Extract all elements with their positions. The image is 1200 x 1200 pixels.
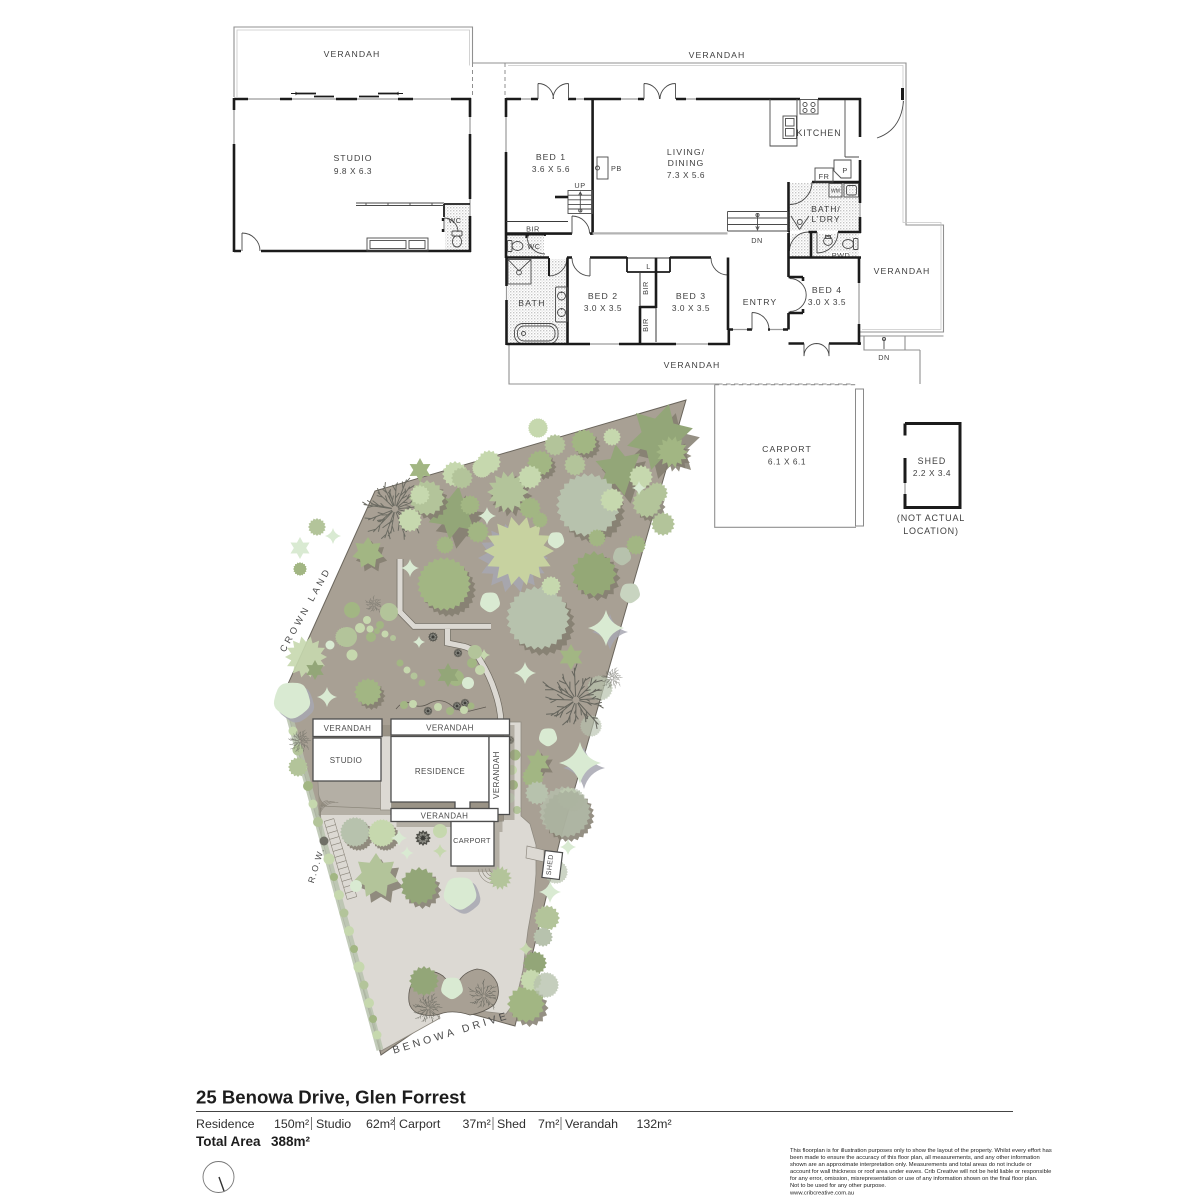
svg-text:BATH: BATH [518, 298, 545, 308]
svg-text:62m²: 62m² [366, 1117, 394, 1131]
svg-text:VERANDAH: VERANDAH [664, 360, 721, 370]
svg-text:DN: DN [751, 236, 763, 245]
svg-text:L’DRY: L’DRY [811, 214, 840, 224]
svg-text:7.3 X 5.6: 7.3 X 5.6 [667, 170, 705, 180]
svg-text:9.8 X 6.3: 9.8 X 6.3 [334, 166, 372, 176]
svg-text:6.1 X 6.1: 6.1 X 6.1 [768, 457, 806, 467]
svg-text:DN: DN [878, 353, 890, 362]
svg-text:(NOT ACTUAL: (NOT ACTUAL [897, 513, 965, 523]
svg-text:VERANDAH: VERANDAH [874, 266, 931, 276]
svg-text:Verandah: Verandah [565, 1117, 618, 1131]
svg-text:Studio: Studio [316, 1117, 351, 1131]
svg-text:VERANDAH: VERANDAH [324, 724, 372, 733]
svg-text:CARPORT: CARPORT [762, 444, 812, 454]
svg-text:VERANDAH: VERANDAH [426, 724, 474, 733]
svg-text:BED 3: BED 3 [676, 291, 706, 301]
svg-text:Not to be used for any other p: Not to be used for any other purpose. [790, 1183, 886, 1189]
svg-text:7m²: 7m² [538, 1117, 559, 1131]
svg-text:Residence: Residence [196, 1117, 255, 1131]
svg-text:RESIDENCE: RESIDENCE [415, 767, 465, 776]
svg-text:www.cribcreative.com.au: www.cribcreative.com.au [789, 1190, 854, 1196]
svg-text:for any error, omission, misre: for any error, omission, misrepresentati… [790, 1176, 1038, 1182]
svg-text:CARPORT: CARPORT [453, 836, 491, 845]
svg-text:shown are an approximate inter: shown are an approximate interpretation … [790, 1162, 1032, 1168]
svg-text:VERANDAH: VERANDAH [421, 812, 469, 821]
svg-text:DINING: DINING [668, 158, 705, 168]
svg-text:BIR: BIR [641, 318, 650, 332]
svg-text:37m²: 37m² [463, 1117, 491, 1131]
svg-text:BED 4: BED 4 [812, 285, 842, 295]
svg-text:WC: WC [448, 216, 461, 225]
svg-text:150m²: 150m² [274, 1117, 309, 1131]
svg-text:Shed: Shed [497, 1117, 526, 1131]
svg-text:3.0 X 3.5: 3.0 X 3.5 [672, 303, 710, 313]
svg-text:KITCHEN: KITCHEN [797, 128, 842, 138]
svg-text:Total Area: Total Area [196, 1134, 261, 1149]
svg-text:PB: PB [611, 164, 622, 173]
svg-text:388m²: 388m² [271, 1134, 311, 1149]
svg-text:3.0 X 3.5: 3.0 X 3.5 [584, 303, 622, 313]
svg-text:WM: WM [831, 189, 840, 195]
svg-text:STUDIO: STUDIO [333, 153, 372, 163]
svg-text:VERANDAH: VERANDAH [492, 751, 501, 799]
svg-text:WC: WC [527, 242, 540, 251]
svg-text:STUDIO: STUDIO [330, 756, 363, 765]
svg-text:This floorplan is for illustra: This floorplan is for illustration purpo… [790, 1148, 1052, 1154]
svg-text:BED 1: BED 1 [536, 152, 566, 162]
svg-text:2.2 X 3.4: 2.2 X 3.4 [913, 468, 951, 478]
svg-text:BIR: BIR [641, 281, 650, 295]
svg-text:P: P [842, 166, 847, 175]
svg-text:3.0 X 3.5: 3.0 X 3.5 [808, 297, 846, 307]
svg-text:ENTRY: ENTRY [743, 297, 778, 307]
svg-text:BED 2: BED 2 [588, 291, 618, 301]
svg-text:LIVING/: LIVING/ [667, 147, 705, 157]
svg-text:Carport: Carport [399, 1117, 441, 1131]
svg-text:L: L [646, 262, 651, 271]
svg-text:UP: UP [574, 181, 585, 190]
svg-text:132m²: 132m² [637, 1117, 672, 1131]
svg-text:VERANDAH: VERANDAH [324, 49, 381, 59]
svg-text:R.O.W.: R.O.W. [306, 846, 326, 884]
svg-text:been made to ensure the accura: been made to ensure the accuracy of this… [790, 1155, 1040, 1161]
svg-text:BIR: BIR [526, 225, 540, 234]
svg-text:25 Benowa Drive, Glen Forrest: 25 Benowa Drive, Glen Forrest [196, 1087, 466, 1108]
svg-text:3.6 X 5.6: 3.6 X 5.6 [532, 164, 570, 174]
svg-text:FR: FR [819, 172, 830, 181]
svg-text:LOCATION): LOCATION) [903, 526, 959, 536]
svg-text:SHED: SHED [918, 456, 947, 466]
svg-text:account for wall thickness or: account for wall thickness or roof area … [790, 1169, 1051, 1175]
svg-text:VERANDAH: VERANDAH [689, 50, 746, 60]
svg-text:BATH/: BATH/ [811, 204, 841, 214]
